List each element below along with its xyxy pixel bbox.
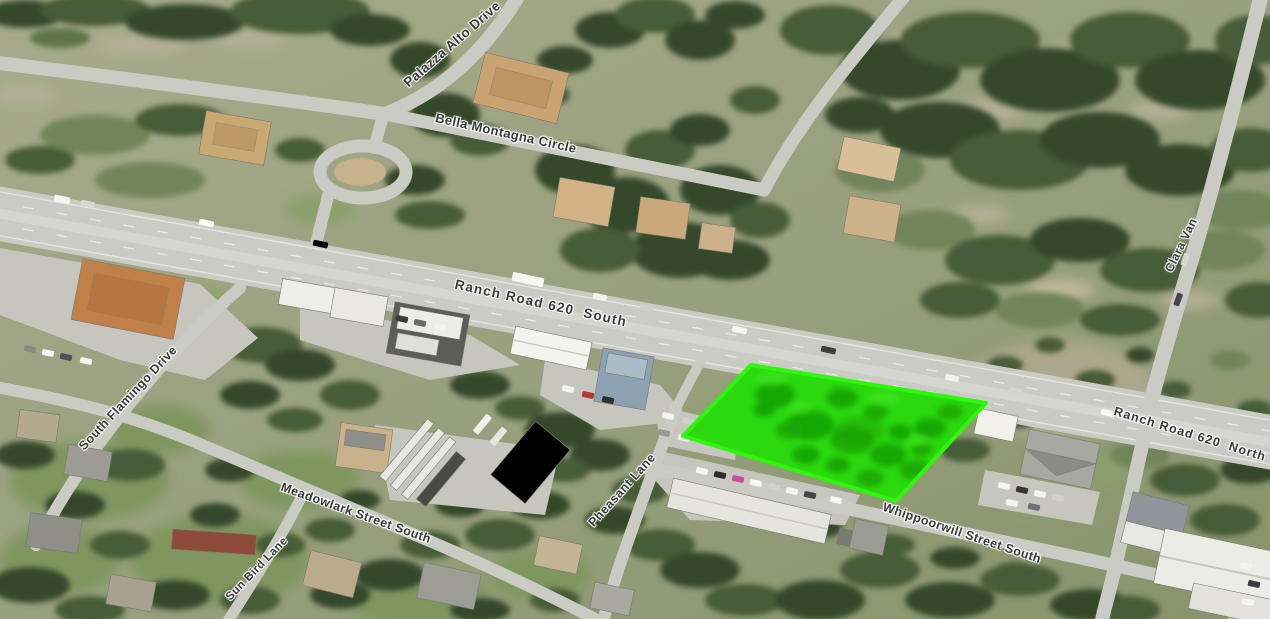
building-house [26,513,82,554]
building-apartment [335,423,393,474]
building-house [16,409,60,442]
building-house [636,197,691,240]
aerial-photo [0,0,1270,619]
entrance-island [334,158,386,186]
building-house [698,223,735,253]
aerial-map: Palazza Alto Drive Bella Montagna Circle… [0,0,1270,619]
